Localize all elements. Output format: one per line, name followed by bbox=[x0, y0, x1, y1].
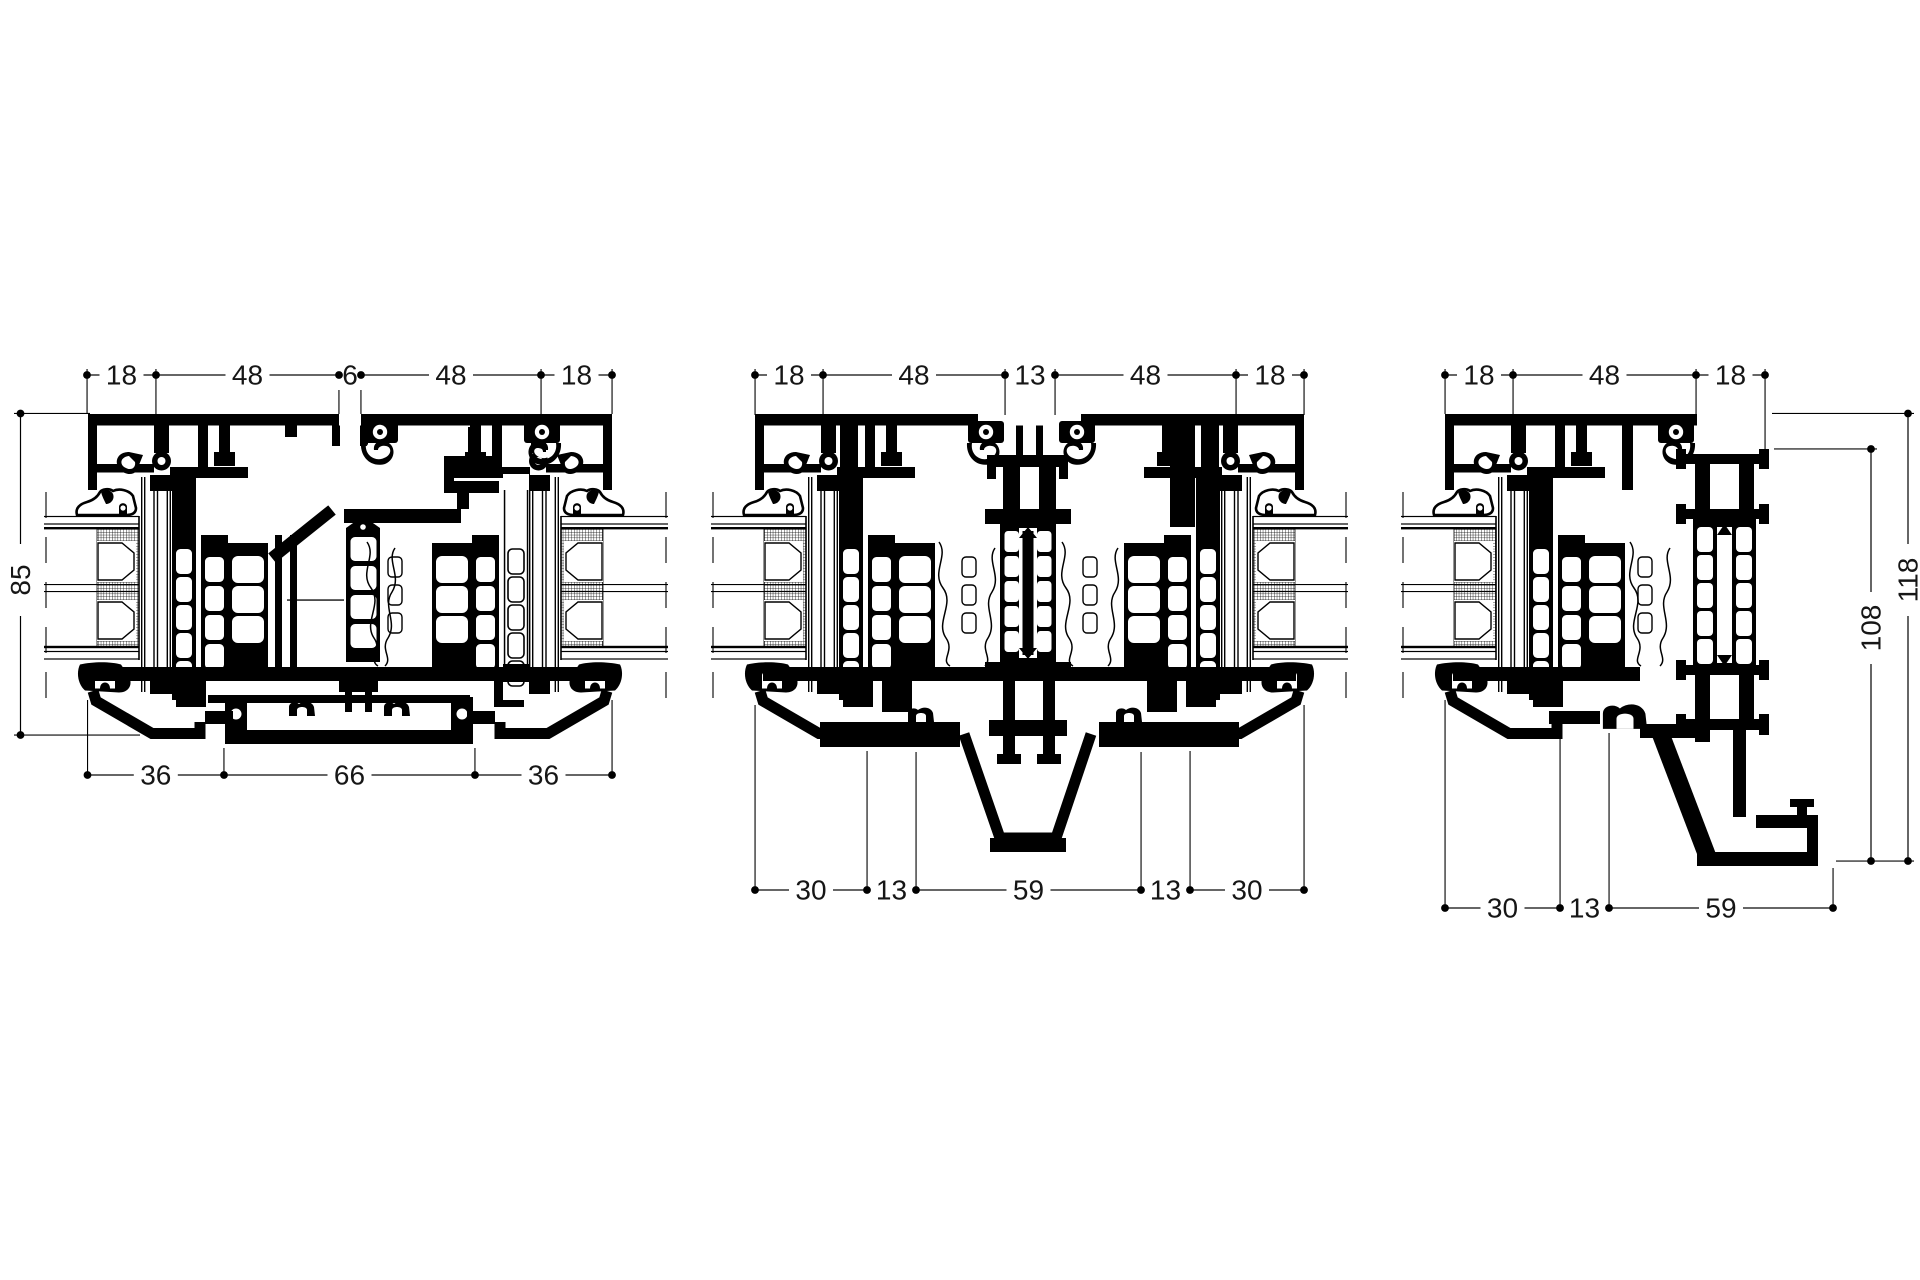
svg-text:30: 30 bbox=[1231, 875, 1262, 906]
svg-text:13: 13 bbox=[1014, 360, 1045, 391]
svg-text:59: 59 bbox=[1013, 875, 1044, 906]
svg-text:30: 30 bbox=[1487, 893, 1518, 924]
svg-text:66: 66 bbox=[334, 760, 365, 791]
svg-text:85: 85 bbox=[5, 564, 36, 595]
svg-text:13: 13 bbox=[876, 875, 907, 906]
svg-text:13: 13 bbox=[1150, 875, 1181, 906]
svg-text:48: 48 bbox=[435, 360, 466, 391]
svg-text:30: 30 bbox=[795, 875, 826, 906]
svg-text:48: 48 bbox=[232, 360, 263, 391]
svg-text:18: 18 bbox=[1715, 360, 1746, 391]
svg-text:48: 48 bbox=[1589, 360, 1620, 391]
svg-text:18: 18 bbox=[561, 360, 592, 391]
svg-text:36: 36 bbox=[140, 760, 171, 791]
svg-text:18: 18 bbox=[1254, 360, 1285, 391]
svg-text:48: 48 bbox=[1130, 360, 1161, 391]
svg-text:13: 13 bbox=[1569, 893, 1600, 924]
svg-text:18: 18 bbox=[106, 360, 137, 391]
svg-text:108: 108 bbox=[1856, 605, 1887, 652]
svg-text:36: 36 bbox=[528, 760, 559, 791]
svg-text:118: 118 bbox=[1893, 558, 1920, 603]
svg-text:48: 48 bbox=[898, 360, 929, 391]
svg-text:59: 59 bbox=[1705, 893, 1736, 924]
svg-text:18: 18 bbox=[773, 360, 804, 391]
svg-text:6: 6 bbox=[342, 360, 358, 391]
svg-text:18: 18 bbox=[1463, 360, 1494, 391]
